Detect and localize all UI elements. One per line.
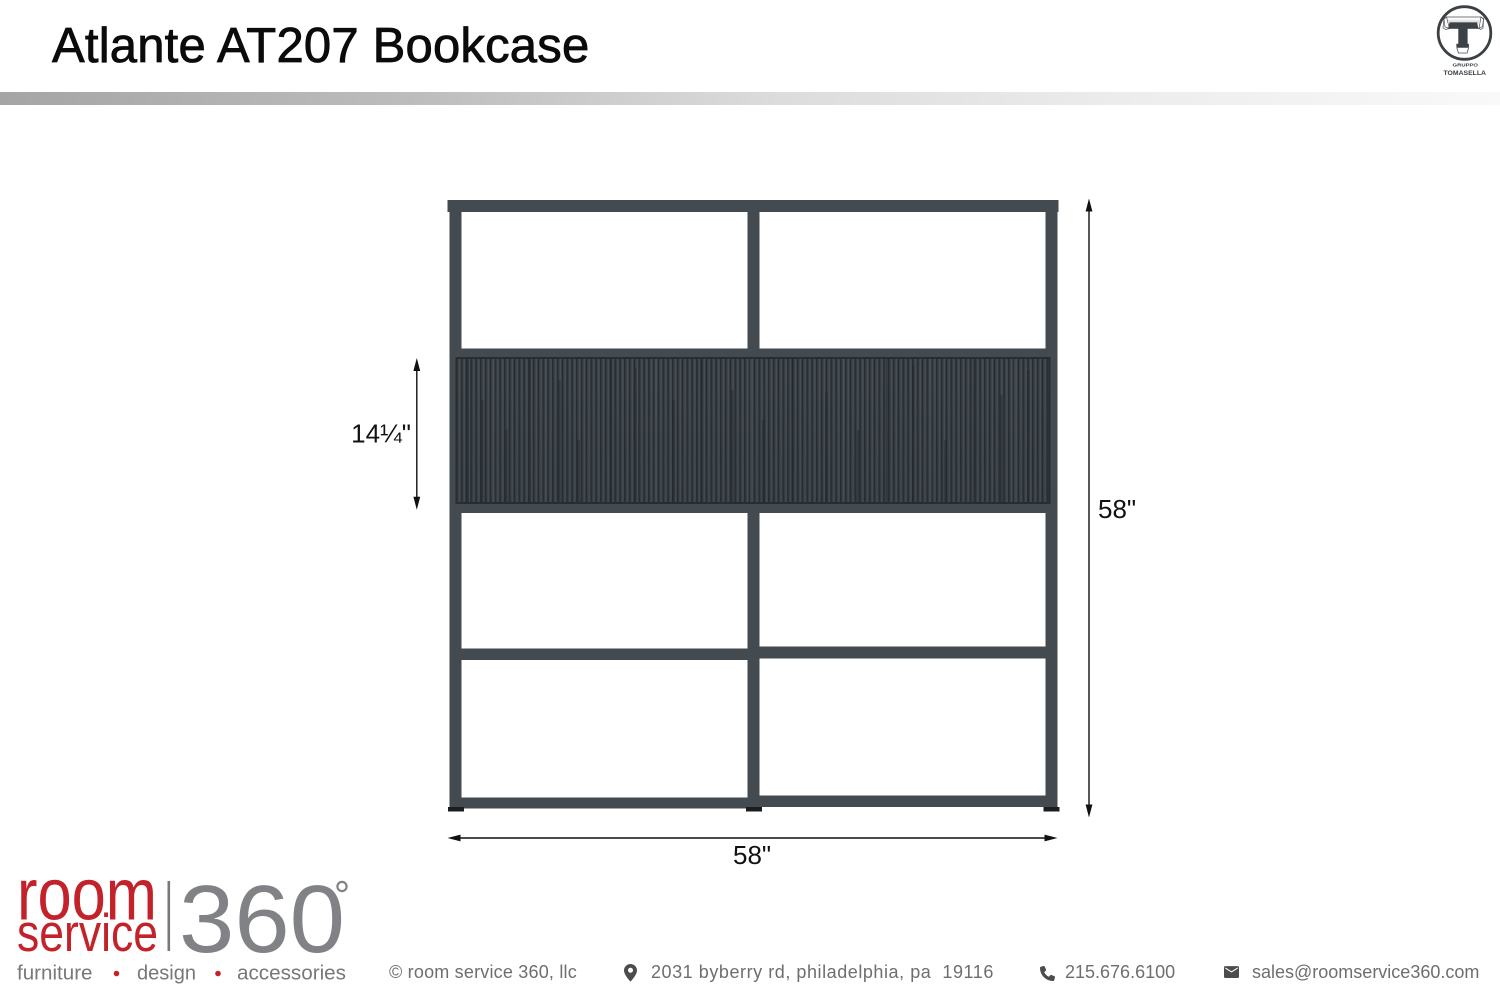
svg-text:58": 58" [1098, 494, 1136, 524]
svg-text:GRUPPO: GRUPPO [1453, 63, 1479, 68]
svg-text:accessories: accessories [237, 963, 346, 985]
svg-text:design: design [137, 963, 196, 985]
svg-text:360: 360 [179, 866, 345, 973]
svg-text:14¼": 14¼" [351, 419, 411, 449]
svg-text:58": 58" [733, 840, 771, 870]
svg-text:furniture: furniture [17, 963, 93, 985]
svg-text:TOMASELLA: TOMASELLA [1444, 70, 1487, 77]
svg-text:service: service [17, 904, 158, 963]
